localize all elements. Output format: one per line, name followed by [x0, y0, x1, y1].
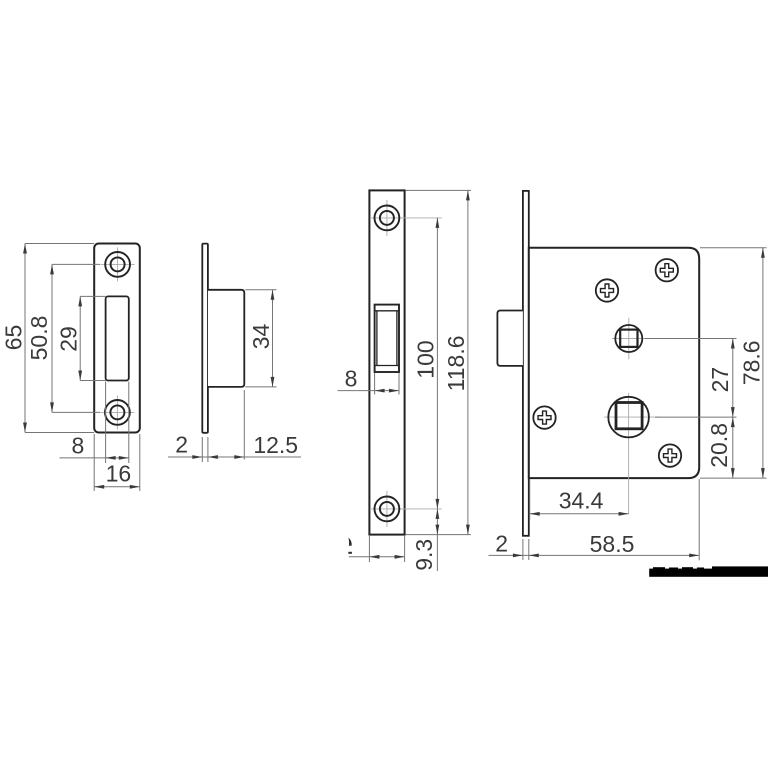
svg-text:78.6: 78.6 [739, 340, 765, 385]
svg-text:20.8: 20.8 [706, 423, 732, 468]
svg-text:100: 100 [413, 340, 439, 378]
svg-text:2: 2 [175, 431, 188, 457]
svg-text:50.8: 50.8 [26, 316, 52, 361]
svg-text:27: 27 [707, 367, 733, 393]
svg-text:65: 65 [1, 325, 27, 351]
svg-text:8: 8 [72, 433, 85, 459]
svg-text:118.6: 118.6 [443, 335, 469, 391]
svg-text:2: 2 [495, 531, 508, 557]
svg-text:58.5: 58.5 [590, 531, 635, 557]
svg-text:9.3: 9.3 [411, 539, 437, 571]
svg-text:29: 29 [55, 326, 81, 352]
svg-text:34: 34 [248, 324, 274, 350]
svg-text:34.4: 34.4 [559, 488, 604, 514]
svg-text:16: 16 [106, 461, 132, 487]
svg-text:8: 8 [345, 366, 358, 392]
svg-text:12.5: 12.5 [253, 432, 298, 458]
